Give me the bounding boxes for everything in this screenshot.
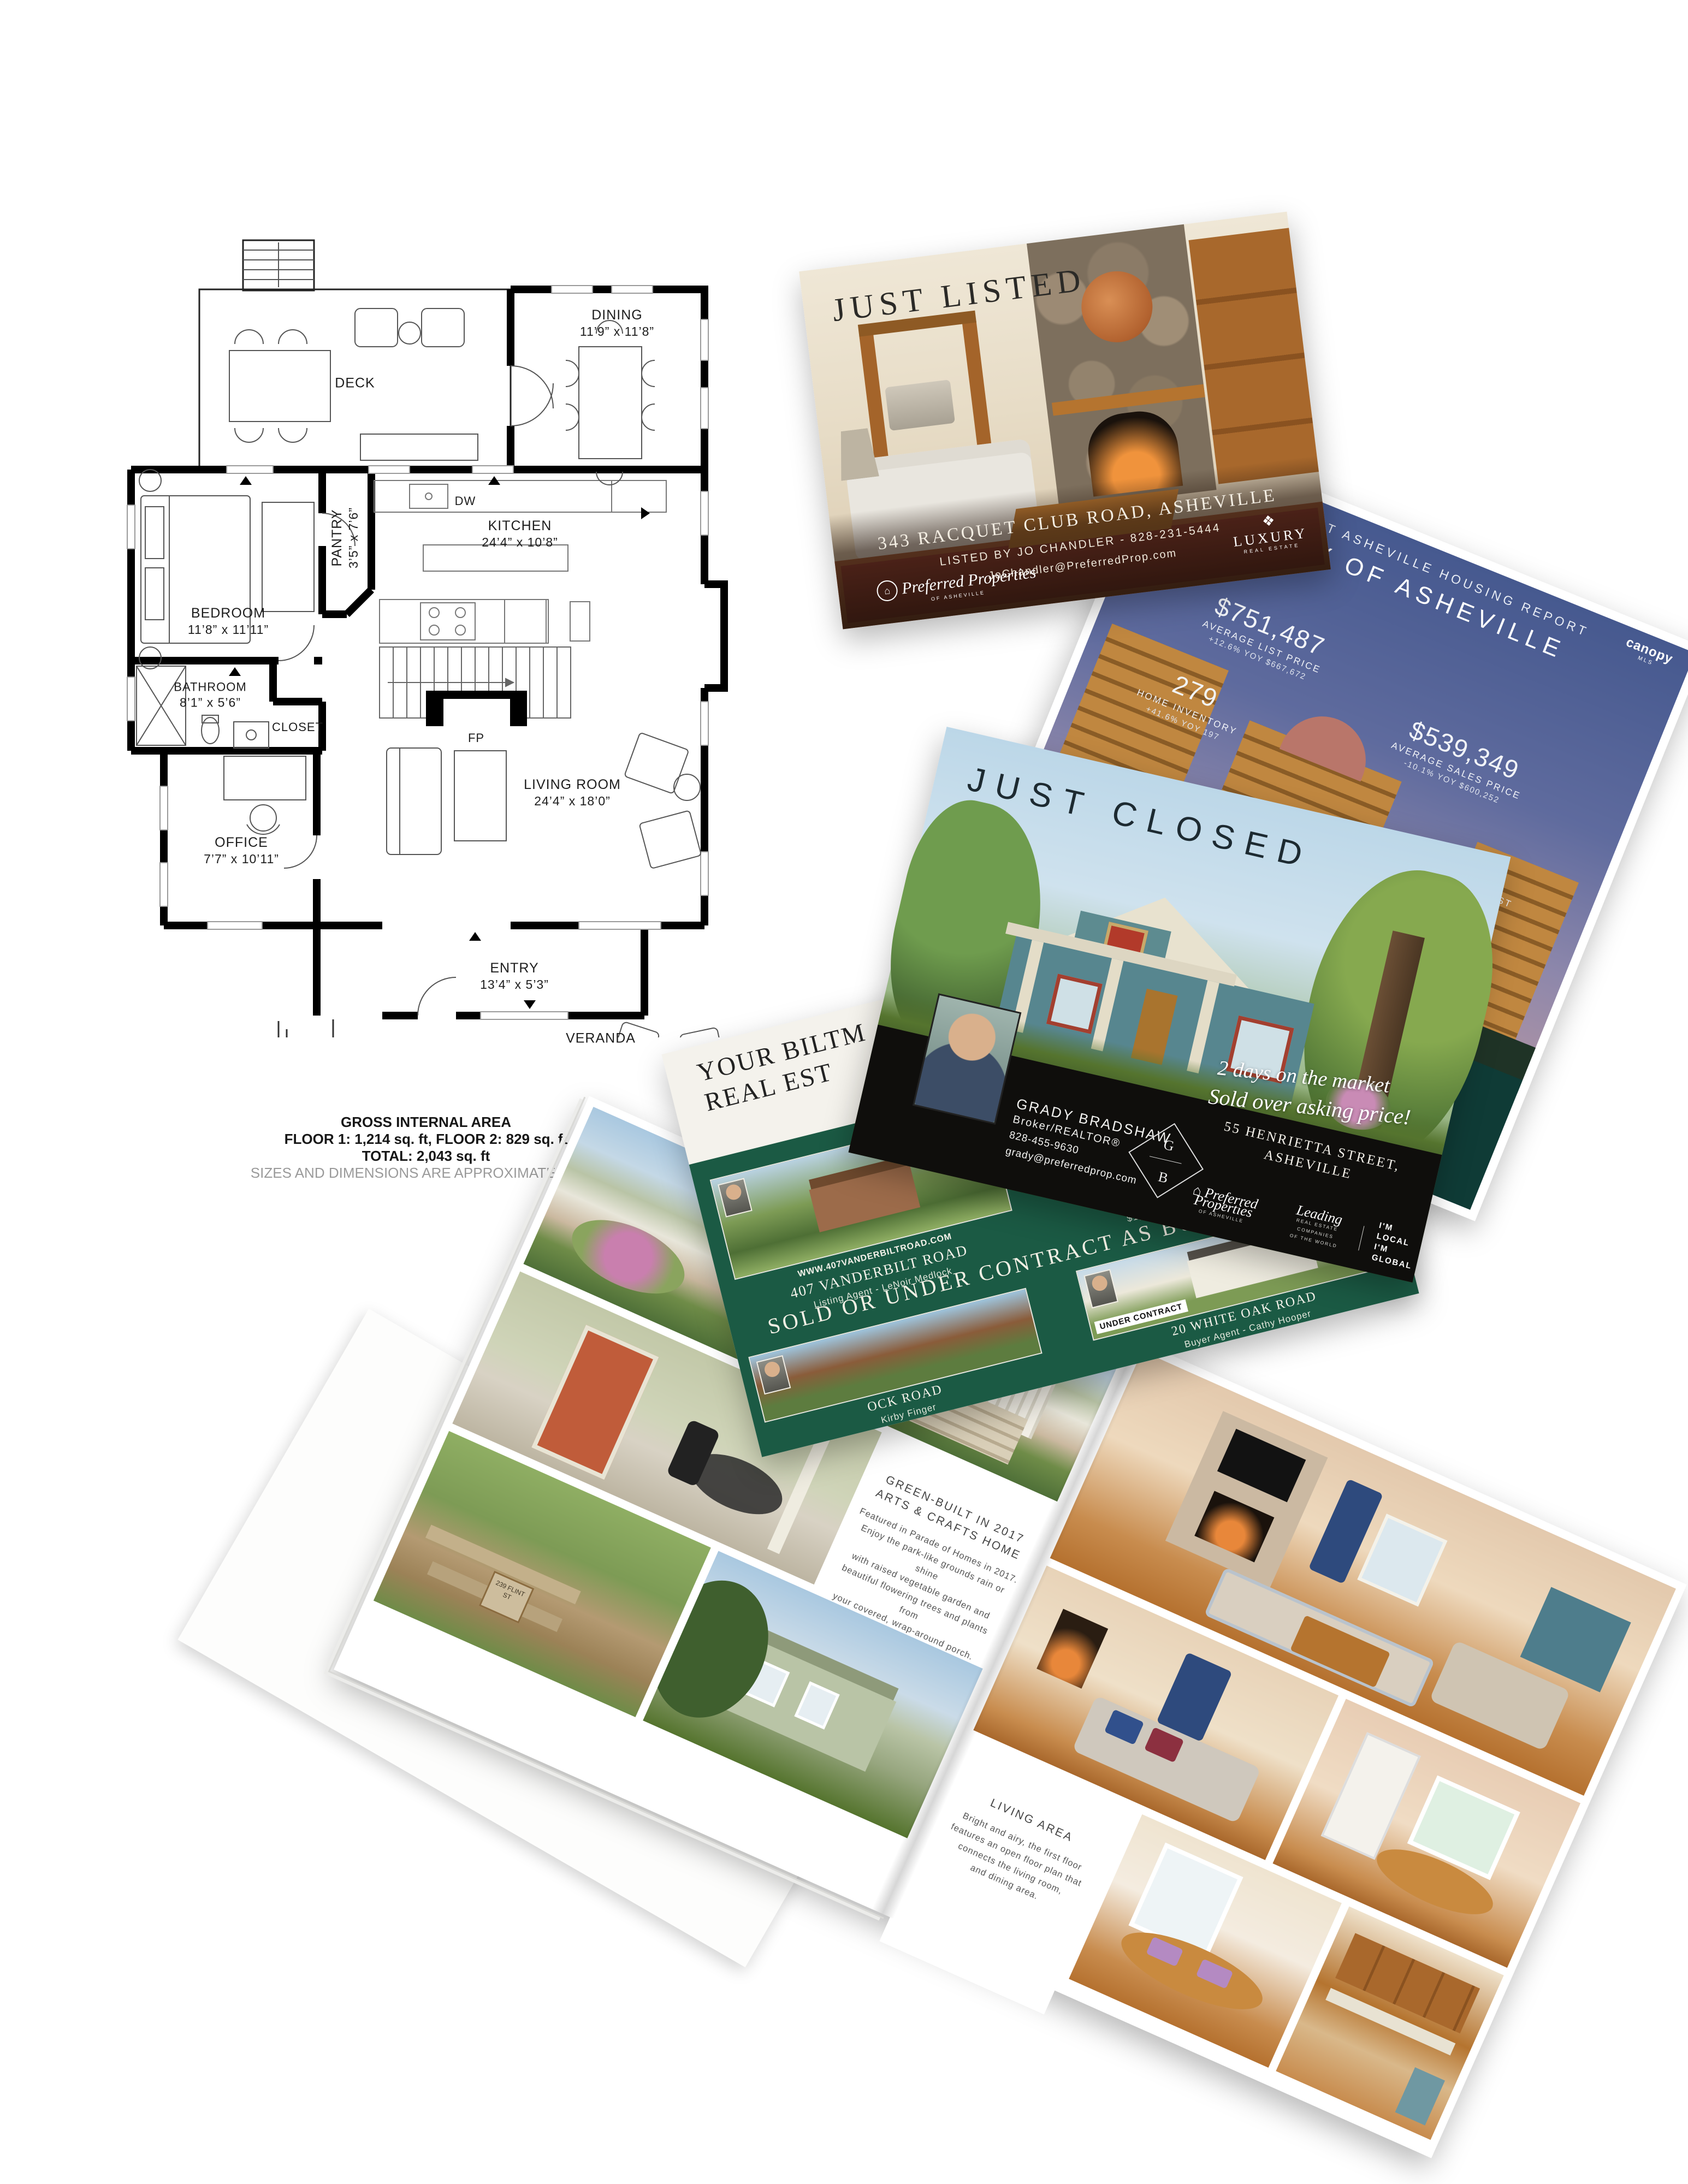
preferred-emblem-icon: ⌂ [875,579,898,602]
room-label-bathroom: BATHROOM8’1” x 5’6” [174,680,246,710]
label-fireplace: FP [468,731,484,745]
just-listed-postcard: JUST LISTED 343 RACQUET CLUB ROAD, ASHEV… [799,212,1331,630]
agent-headshot-lenoir [718,1178,753,1217]
room-label-office: OFFICE7’7” x 10’11” [204,835,279,867]
room-label-deck: DECK [335,376,375,391]
front-door [531,1325,659,1480]
leading-re-logo: Leading REAL ESTATE COMPANIES OF THE WOR… [1282,1204,1351,1252]
floor-plan: DECK DINING11’9” x 11’8” KITCHEN24’4” x … [98,207,754,1037]
room-label-kitchen: KITCHEN24’4” x 10’8” [482,518,558,550]
room-label-pantry: PANTRY3’5” x 7’6” [329,507,361,568]
room-label-bedroom: BEDROOM11’8” x 11’11” [188,606,269,637]
teal-accent [1395,2067,1445,2126]
label-dishwasher: DW [455,494,476,508]
room-label-veranda: VERANDA [566,1031,636,1047]
fireplace [1037,1609,1108,1689]
white-door [1321,1732,1421,1860]
marketing-collage: DECK DINING11’9” x 11’8” KITCHEN24’4” x … [0,0,1688,2184]
room-label-dining: DINING11’9” x 11’8” [580,307,654,339]
room-label-closet: CLOSET [272,720,323,734]
manor-house [809,1165,921,1232]
room-label-entry: ENTRY13’4” x 5’3” [480,960,549,992]
agent-headshot-cathy [1083,1269,1118,1308]
brand-divider [1358,1226,1364,1250]
upper-cabinets [1335,1933,1480,2033]
range-hood [885,379,955,431]
window [1357,1514,1447,1606]
room-label-living: LIVING ROOM24’4” x 18’0” [524,777,621,809]
agent-headshot-kirby [756,1355,791,1394]
